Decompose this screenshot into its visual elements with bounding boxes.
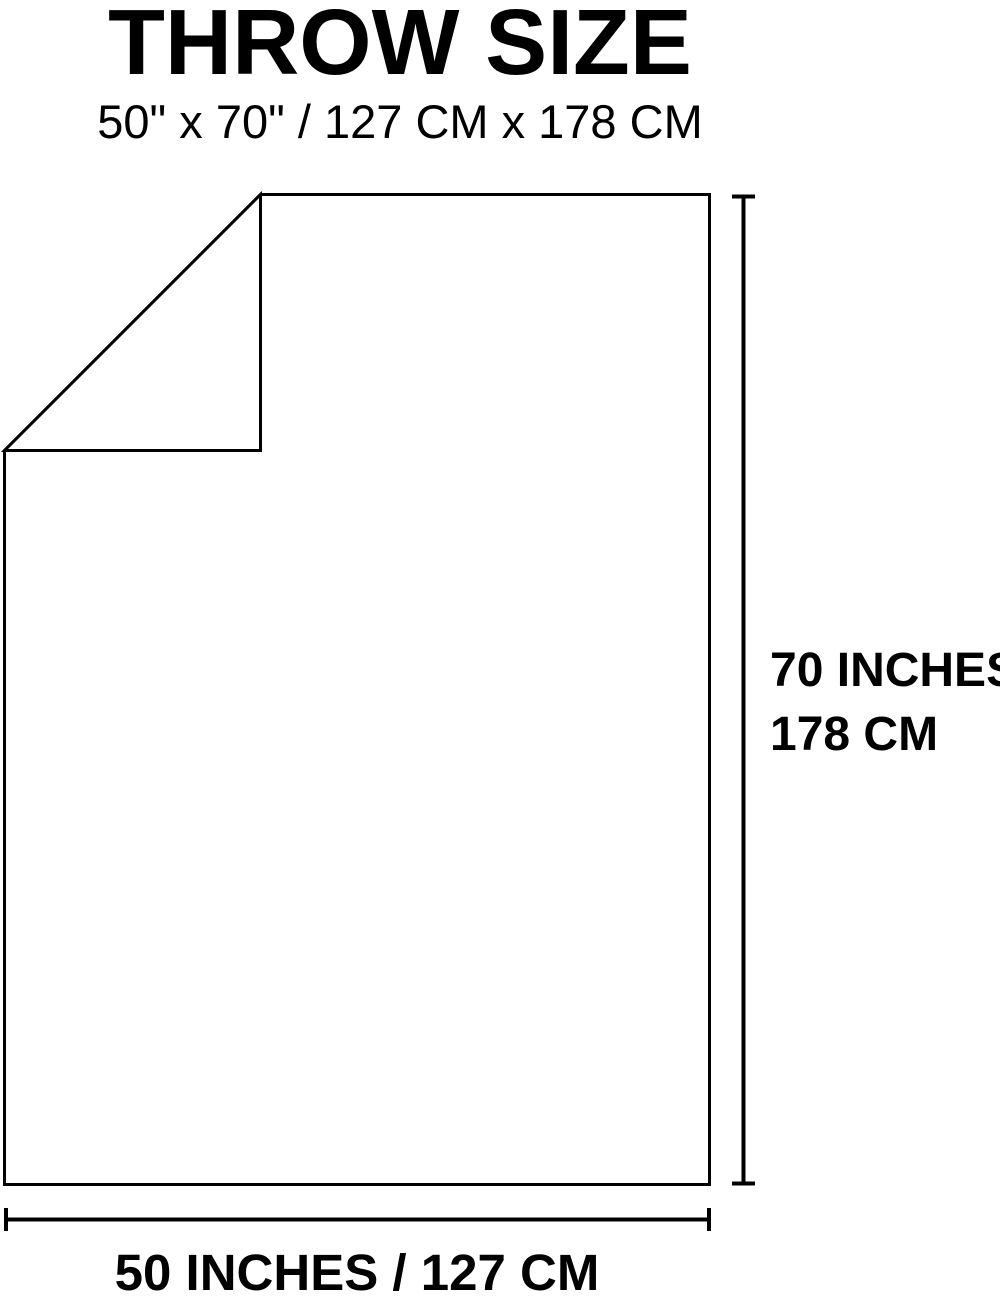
height-dimension-label: 70 INCHES 178 CM bbox=[770, 639, 1000, 767]
throw-size-diagram: THROW SIZE 50" x 70" / 127 CM x 178 CM 7… bbox=[0, 0, 1000, 1296]
folded-corner-flap bbox=[5, 195, 261, 451]
height-label-cm: 178 CM bbox=[770, 703, 1000, 767]
width-dimension-line bbox=[6, 1208, 709, 1231]
height-dimension-line bbox=[732, 197, 755, 1184]
width-dimension-label: 50 INCHES / 127 CM bbox=[57, 1247, 657, 1298]
height-label-inches: 70 INCHES bbox=[770, 639, 1000, 703]
